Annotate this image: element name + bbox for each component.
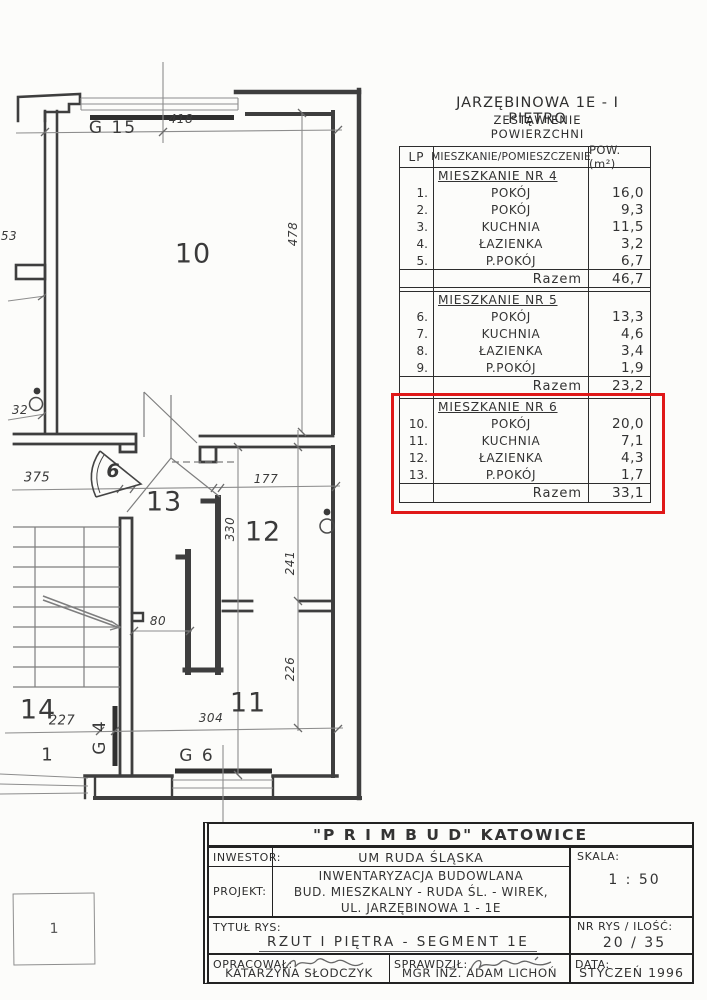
room-label-11: 11 — [230, 688, 266, 719]
entry-label-1: 1 — [41, 745, 52, 766]
table-row: 6.POKÓJ13,3 — [400, 308, 650, 325]
room-label-12: 12 — [245, 517, 281, 548]
apartment-number-6: 6 — [106, 460, 119, 482]
dim-177: 177 — [254, 472, 278, 486]
skala-value: 1 : 50 — [577, 872, 692, 888]
ground-lines — [0, 774, 88, 794]
riser-dot — [34, 388, 41, 395]
signature-row: OPRACOWAŁ: KATARZYNA SŁODCZYK SPRAWDZIŁ:… — [209, 955, 692, 982]
projekt-value: INWENTARYZACJA BUDOWLANA BUD. MIESZKALNY… — [273, 867, 569, 916]
nr-rys-value: 20 / 35 — [577, 935, 692, 951]
total-row: Razem23,2 — [400, 376, 650, 395]
table-header-row: LP MIESZKANIE/POMIESZCZENIE POW. (m²) — [400, 147, 650, 168]
stairs — [13, 527, 120, 687]
window-label-g4: G 4 — [90, 719, 110, 754]
table-row: 4.ŁAZIENKA3,2 — [400, 235, 650, 252]
nr-rys-label: NR RYS / ILOŚĆ: — [577, 920, 692, 933]
opracowal-name: KATARZYNA SŁODCZYK — [209, 966, 389, 980]
section-title: MIESZKANIE NR 5 — [434, 292, 589, 308]
total-value: 46,7 — [589, 270, 650, 288]
title-block: "P R I M B U D" KATOWICE INWESTOR: UM RU… — [203, 822, 694, 984]
table-row: 8.ŁAZIENKA3,4 — [400, 342, 650, 359]
total-row: Razem46,7 — [400, 269, 650, 288]
table-section-mieszkanie-6: MIESZKANIE NR 6 10.POKÓJ20,0 11.KUCHNIA7… — [400, 399, 650, 502]
room-label-13: 13 — [146, 487, 182, 518]
col-header-lp: LP — [400, 147, 434, 167]
section-title: MIESZKANIE NR 6 — [434, 399, 589, 415]
section-title: MIESZKANIE NR 4 — [434, 168, 589, 184]
window-label-g6: G 6 — [179, 746, 214, 766]
table-row: 10.POKÓJ20,0 — [400, 415, 650, 432]
dim-241: 241 — [283, 551, 297, 575]
total-value: 33,1 — [589, 484, 650, 502]
dim-478: 478 — [286, 222, 300, 246]
dim-226: 226 — [283, 657, 297, 681]
stairs-direction-line — [43, 596, 120, 628]
window-g15-lines — [81, 98, 238, 110]
window-label-g15: G 15 — [89, 118, 137, 138]
room-label-10: 10 — [175, 239, 211, 270]
inwestor-value: UM RUDA ŚLĄSKA — [273, 850, 569, 865]
total-value: 23,2 — [589, 377, 650, 395]
table-row: 5.P.POKÓJ6,7 — [400, 252, 650, 269]
table-section-mieszkanie-4: MIESZKANIE NR 4 1.POKÓJ16,0 2.POKÓJ9,3 3… — [400, 168, 650, 288]
riser-dot — [324, 509, 331, 516]
table-row: 7.KUCHNIA4,6 — [400, 325, 650, 342]
section-title-row: MIESZKANIE NR 4 — [400, 168, 650, 184]
tytul-label: TYTUŁ RYS: — [213, 921, 281, 934]
page-number: 1 — [49, 921, 58, 937]
drawing-title: RZUT I PIĘTRA - SEGMENT 1E — [259, 934, 537, 952]
dim-32: 32 — [12, 403, 28, 417]
chimney-wall — [18, 94, 80, 121]
table-row: 2.POKÓJ9,3 — [400, 201, 650, 218]
riser-circle — [30, 398, 43, 411]
dim-227: 227 — [49, 714, 75, 729]
dim-53: 53 — [1, 229, 17, 243]
page-number-box: 1 — [13, 893, 96, 966]
table-row: 3.KUCHNIA11,5 — [400, 218, 650, 235]
data-value: STYCZEŃ 1996 — [571, 965, 692, 980]
inwestor-label: INWESTOR: — [209, 848, 273, 866]
sprawdzil-name: MGR INŻ. ADAM LICHOŃ — [390, 966, 569, 980]
door-swings — [127, 392, 238, 512]
dim-80: 80 — [150, 614, 166, 628]
table-row: 12.ŁAZIENKA4,3 — [400, 449, 650, 466]
col-header-area: POW. (m²) — [589, 147, 650, 167]
total-row: Razem33,1 — [400, 483, 650, 502]
table-row: 13.P.POKÓJ1,7 — [400, 466, 650, 483]
dim-330: 330 — [223, 517, 237, 541]
area-table: LP MIESZKANIE/POMIESZCZENIE POW. (m²) MI… — [399, 146, 651, 503]
table-row: 1.POKÓJ16,0 — [400, 184, 650, 201]
walls — [14, 90, 360, 798]
dim-line-227-304 — [5, 728, 343, 733]
table-subtitle: ZESTAWIENIE POWIERZCHNI — [445, 113, 630, 141]
section-title-row: MIESZKANIE NR 6 — [400, 399, 650, 415]
titleblock-main: INWESTOR: UM RUDA ŚLĄSKA PROJEKT: INWENT… — [209, 848, 692, 918]
wall-stub — [16, 265, 45, 279]
table-section-mieszkanie-5: MIESZKANIE NR 5 6.POKÓJ13,3 7.KUCHNIA4,6… — [400, 292, 650, 395]
col-header-name: MIESZKANIE/POMIESZCZENIE — [434, 147, 589, 167]
dim-375: 375 — [24, 471, 50, 486]
table-row: 11.KUCHNIA7,1 — [400, 432, 650, 449]
dim-418: 418 — [169, 112, 193, 126]
table-row: 9.P.POKÓJ1,9 — [400, 359, 650, 376]
company-header: "P R I M B U D" KATOWICE — [209, 824, 692, 848]
dim-304: 304 — [199, 711, 223, 725]
skala-label: SKALA: — [577, 850, 692, 863]
section-title-row: MIESZKANIE NR 5 — [400, 292, 650, 308]
drawing-title-row: TYTUŁ RYS: RZUT I PIĘTRA - SEGMENT 1E NR… — [209, 918, 692, 955]
scanned-floor-plan-page: G 15 418 478 53 10 32 375 6 13 177 330 1… — [0, 0, 707, 1000]
projekt-label: PROJEKT: — [209, 867, 273, 916]
